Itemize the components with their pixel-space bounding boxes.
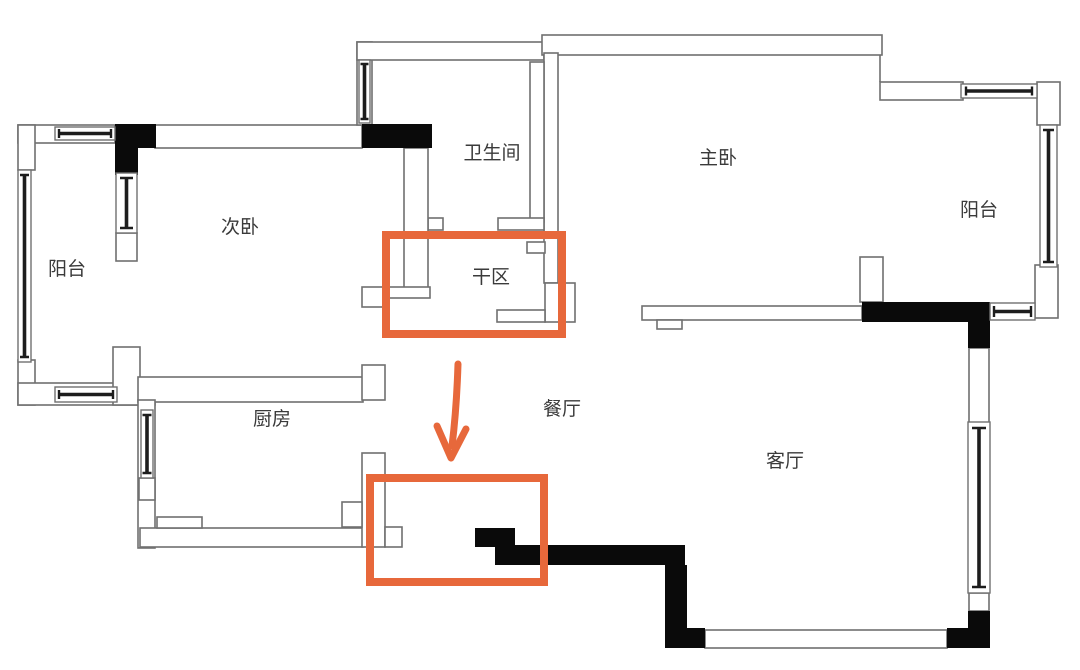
wall-ledge (497, 310, 545, 322)
wall-pier (860, 257, 883, 302)
room-label-bathroom: 卫生间 (463, 142, 520, 164)
window-icon (55, 127, 115, 140)
down-arrow-shaft (452, 364, 458, 446)
wall-corner (1035, 265, 1058, 318)
wall-notch (527, 242, 545, 253)
wall-pier (139, 478, 155, 500)
wall-pier (116, 233, 137, 261)
wall-segment (642, 306, 862, 320)
wall-notch (657, 320, 682, 329)
room-label-balcony-left: 阳台 (48, 258, 86, 280)
wall-segment (969, 348, 989, 423)
wall-notch (428, 218, 443, 230)
solid-wall (362, 124, 432, 148)
room-label-dining-room: 餐厅 (543, 398, 581, 420)
wall-segment (138, 377, 363, 402)
room-label-balcony-right: 阳台 (960, 199, 998, 221)
wall-segment (357, 42, 544, 60)
room-label-master-bedroom: 主卧 (699, 147, 737, 169)
wall-pier (362, 365, 385, 400)
wall-segment (404, 148, 428, 295)
wall-pier (385, 527, 402, 547)
window-icon (961, 84, 1037, 98)
wall-ledge (387, 287, 430, 298)
wall-segment (544, 53, 558, 283)
room-label-kitchen: 厨房 (253, 408, 291, 430)
window-icon (359, 60, 370, 123)
wall-segment (155, 125, 362, 148)
window-icon (990, 303, 1035, 320)
solid-wall-corner (665, 565, 705, 648)
wall-segment (542, 35, 882, 55)
window-icon (141, 410, 153, 478)
room-label-living-room: 客厅 (766, 450, 804, 472)
wall-notch (342, 502, 362, 527)
wall-segment (498, 218, 544, 230)
window-icon (968, 422, 990, 593)
wall-corner (1037, 82, 1060, 125)
window-icon (116, 173, 137, 233)
solid-wall-corner (115, 124, 156, 175)
window-icon (1040, 125, 1057, 267)
wall-segment (705, 630, 947, 648)
wall-corner (18, 125, 35, 170)
floor-plan-page: 阳台 次卧 卫生间 干区 主卧 阳台 厨房 餐厅 客厅 (0, 0, 1080, 670)
solid-wall (475, 528, 515, 547)
solid-wall (495, 545, 685, 565)
wall-segment (969, 593, 989, 611)
window-icon (55, 387, 117, 402)
room-label-second-bedroom: 次卧 (221, 216, 259, 238)
fixture-outline (530, 62, 544, 222)
wall-segment (140, 528, 363, 547)
solid-wall-corner (947, 611, 990, 648)
wall-segment (880, 82, 963, 100)
wall-pier (362, 287, 383, 307)
solid-wall (968, 322, 990, 348)
floor-plan-drawing: 阳台 次卧 卫生间 干区 主卧 阳台 厨房 餐厅 客厅 (0, 0, 1080, 670)
wall-ledge (157, 517, 202, 528)
solid-wall (862, 302, 990, 322)
room-label-dry-area: 干区 (472, 267, 510, 288)
window-icon (18, 170, 31, 362)
